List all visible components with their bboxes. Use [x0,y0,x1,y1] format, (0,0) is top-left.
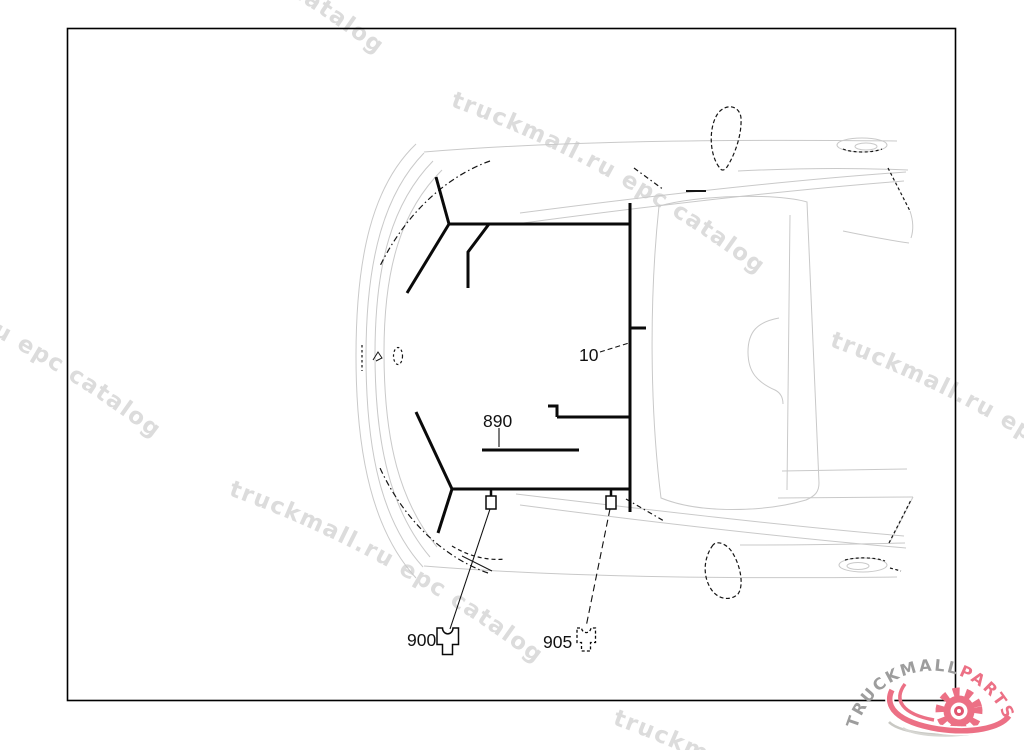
part-label-10[interactable]: 10 [579,345,599,365]
side-mirror-bottom [705,543,741,599]
watermark-text: truckmall.ru epc catalog [448,87,770,280]
part-label-890[interactable]: 890 [483,411,512,431]
watermark-layer: truckmall.ru epc catalog truckmall.ru ep… [0,0,1024,750]
wiring-harness [407,177,646,533]
watermark-text: truckmall.ru epc catalog [67,0,389,60]
part-label-900[interactable]: 900 [407,630,436,650]
connector-stub-900 [486,496,496,509]
watermark-text: truckmall.ru epc catalog [827,327,1024,520]
watermark-text: truckmall.ru epc catalog [610,705,932,750]
watermark-text: truckmall.ru epc catalog [0,251,166,444]
side-mirror-top [711,107,741,170]
connector-symbol-900 [437,628,459,655]
connector-symbol-905 [577,628,596,651]
part-label-905[interactable]: 905 [543,632,572,652]
connector-stub-905 [606,496,616,509]
part-labels: 10 890 900 905 [407,345,599,652]
leader-10 [600,343,629,352]
car-outline [356,138,913,578]
leader-lines [450,343,629,629]
page: truckmall.ru epc catalog truckmall.ru ep… [0,0,1024,750]
diagram-canvas: truckmall.ru epc catalog truckmall.ru ep… [0,0,1024,750]
leader-905 [586,509,610,627]
brand-logo: TRUCKMALLPARTS [842,655,1019,735]
